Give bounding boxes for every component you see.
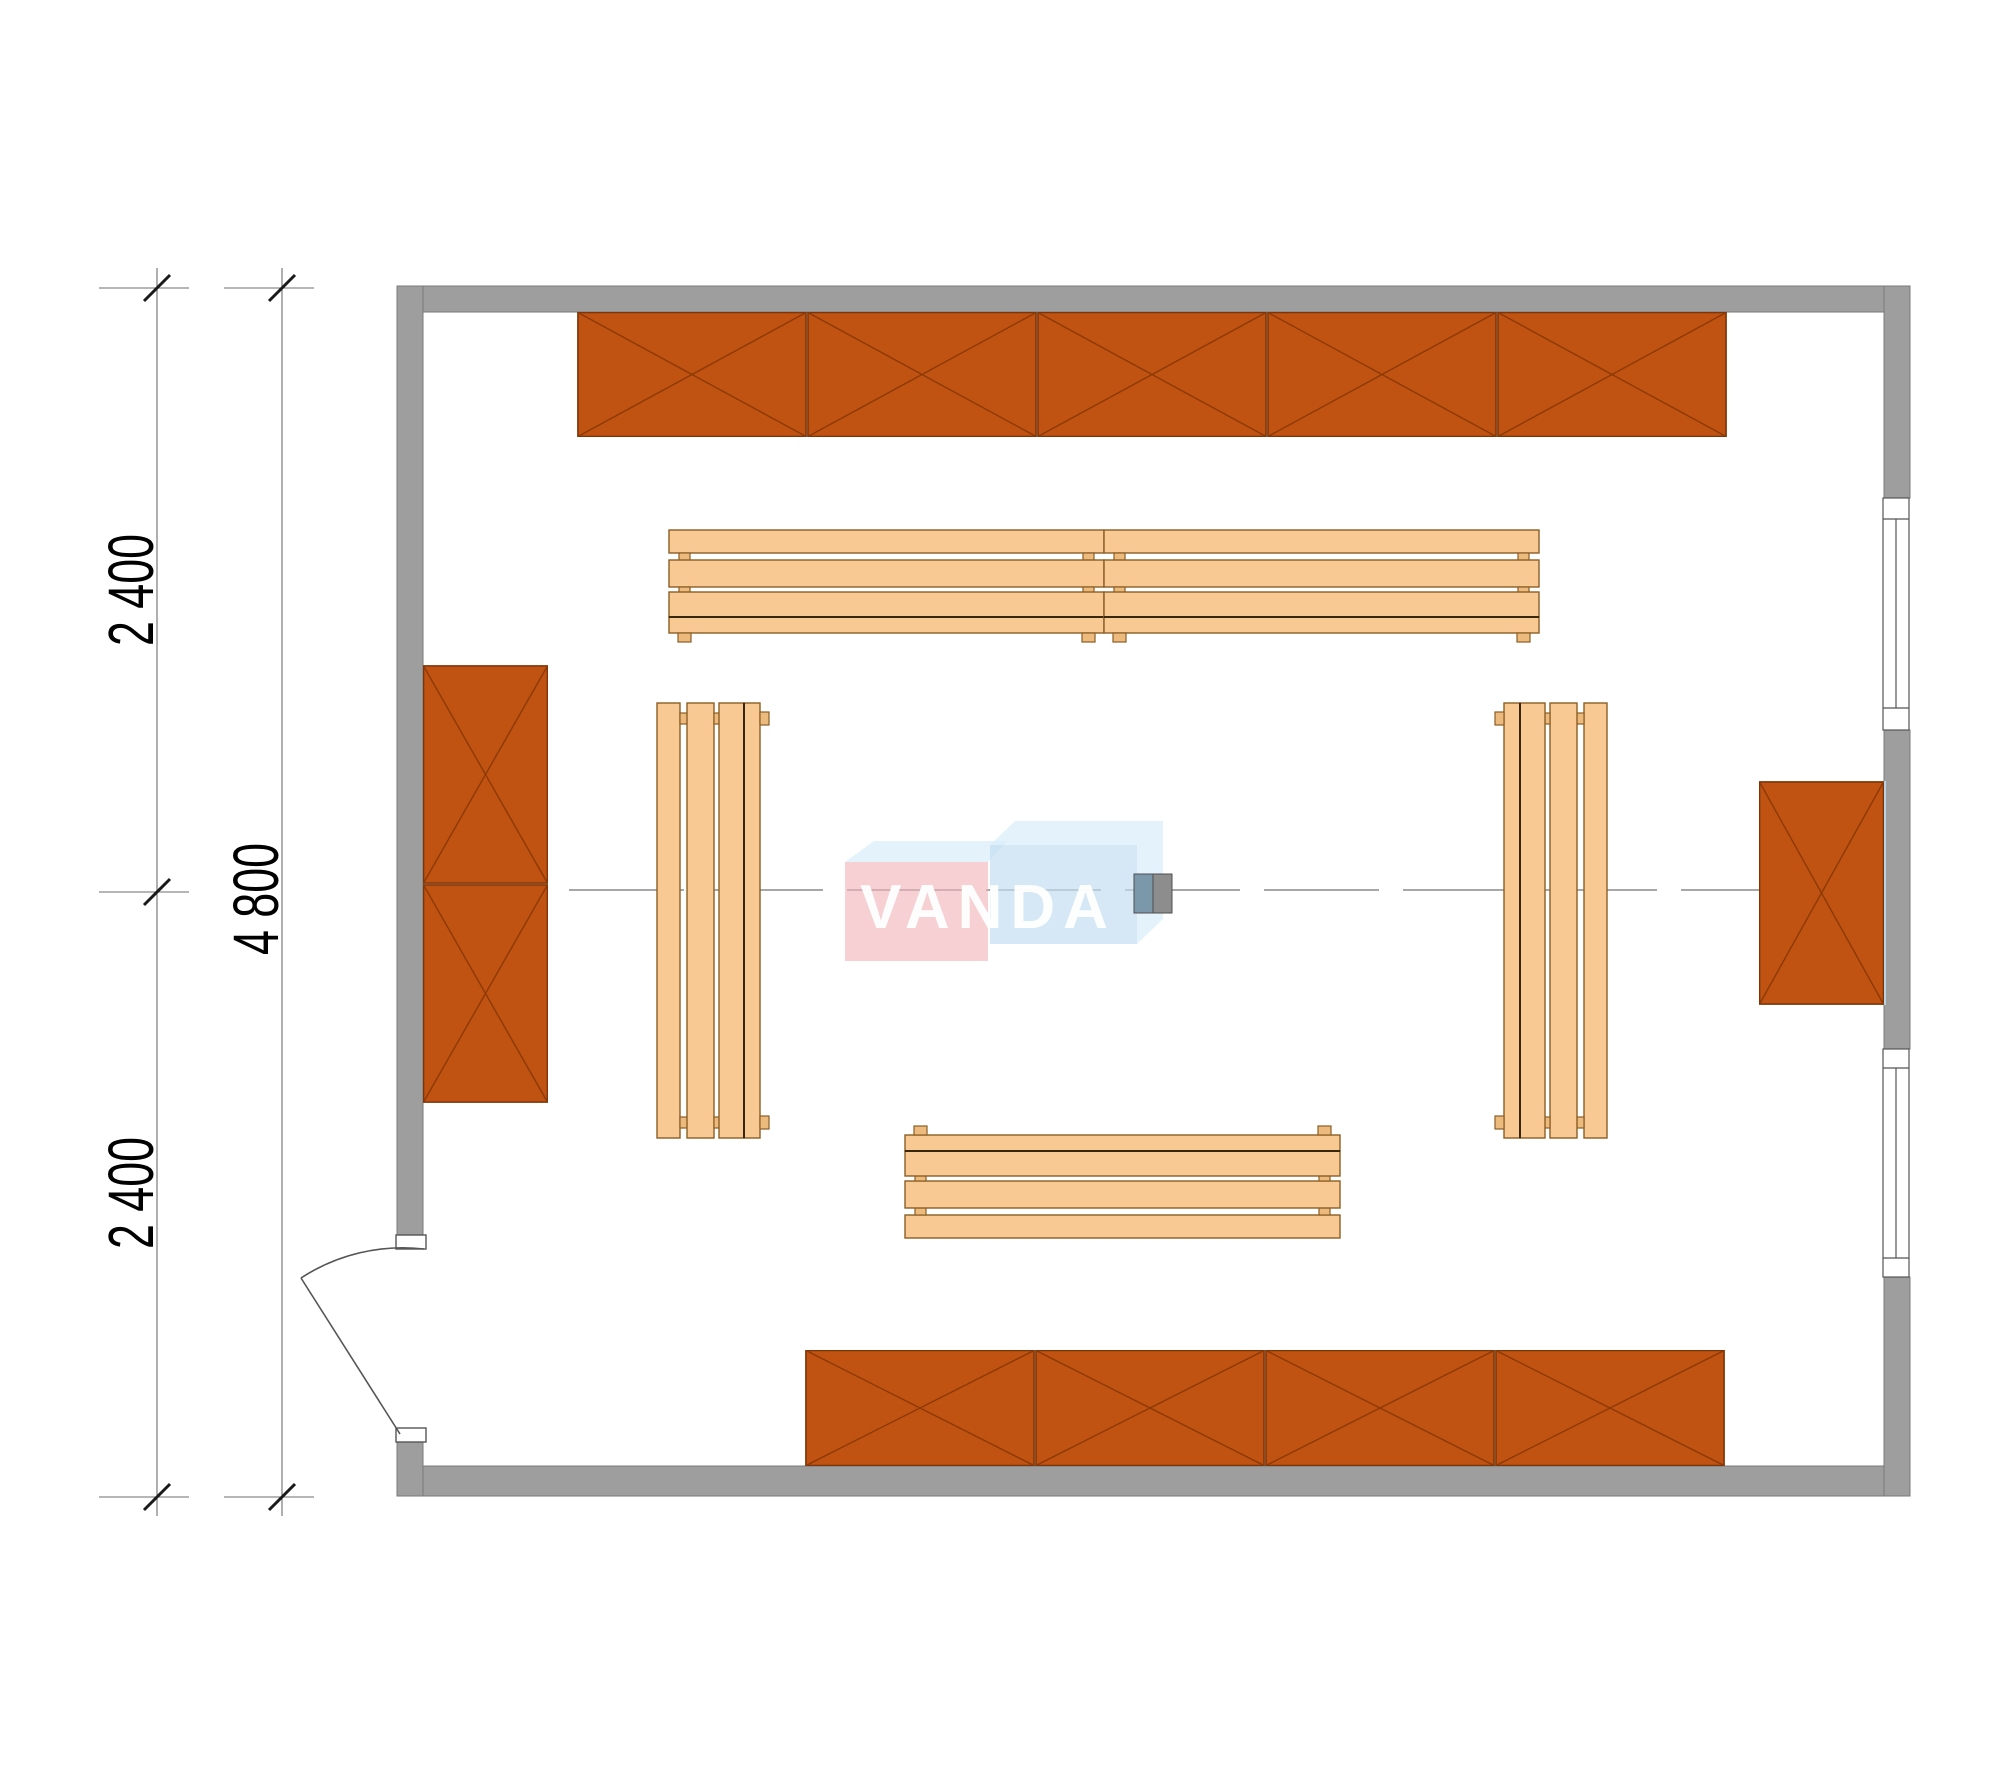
cabinet-unit (1496, 1350, 1724, 1465)
cabinet-unit (1268, 313, 1496, 437)
cabinet-unit (808, 313, 1036, 437)
cabinet-unit (1266, 1350, 1494, 1465)
cabinet-right-wall (1760, 781, 1887, 1005)
cabinet-unit (806, 1350, 1034, 1465)
bench-bottom (905, 1126, 1340, 1238)
door-swing-arc (301, 1248, 424, 1278)
bench-top-left (669, 530, 1104, 642)
door-leaf (301, 1278, 400, 1434)
cabinet-row-bottom (806, 1350, 1724, 1465)
watermark-box-flap (845, 841, 1008, 862)
dimension-label-total: 4 800 (220, 843, 292, 955)
cabinet-unit (1498, 313, 1726, 437)
floor-plan-drawing: 2 400 4 800 2 400 VANDA (0, 0, 2000, 1786)
door-jamb-top (396, 1235, 426, 1249)
cabinet-unit (578, 313, 806, 437)
wall-right-upper (1884, 286, 1910, 498)
cabinet-row-top (578, 313, 1726, 437)
wall-top (397, 286, 1910, 312)
watermark-text: VANDA (860, 873, 1116, 942)
wall-left-door-stub (397, 1442, 423, 1496)
bench-right (1495, 703, 1607, 1138)
column-half-gray (1153, 874, 1172, 913)
door-jamb-bottom (396, 1428, 426, 1442)
floor-plan-canvas: 2 400 4 800 2 400 VANDA (0, 0, 2000, 1786)
dimension-label-bottom: 2 400 (95, 1137, 167, 1249)
watermark: VANDA (845, 821, 1163, 961)
dimension-label-top: 2 400 (95, 534, 167, 646)
window-lower (1883, 1049, 1909, 1277)
bench-left (657, 703, 769, 1138)
cabinet-unit (424, 885, 548, 1102)
wall-bottom (397, 1466, 1910, 1496)
cabinet-unit (1760, 782, 1884, 1004)
wall-right-middle (1884, 730, 1910, 1049)
cabinet-unit (1038, 313, 1266, 437)
cabinet-unit (424, 666, 548, 883)
cabinet-left-wall (424, 666, 548, 1102)
wall-right-lower (1884, 1277, 1910, 1496)
window-upper (1883, 498, 1909, 730)
watermark-box-flap (990, 821, 1163, 845)
door (301, 1235, 426, 1442)
column-half-blue (1134, 874, 1153, 913)
cabinet-unit (1036, 1350, 1264, 1465)
dimension-lines: 2 400 4 800 2 400 (95, 268, 314, 1516)
bench-top-right (1104, 530, 1539, 642)
wall-left-upper (397, 286, 423, 1235)
center-column (1134, 874, 1172, 913)
